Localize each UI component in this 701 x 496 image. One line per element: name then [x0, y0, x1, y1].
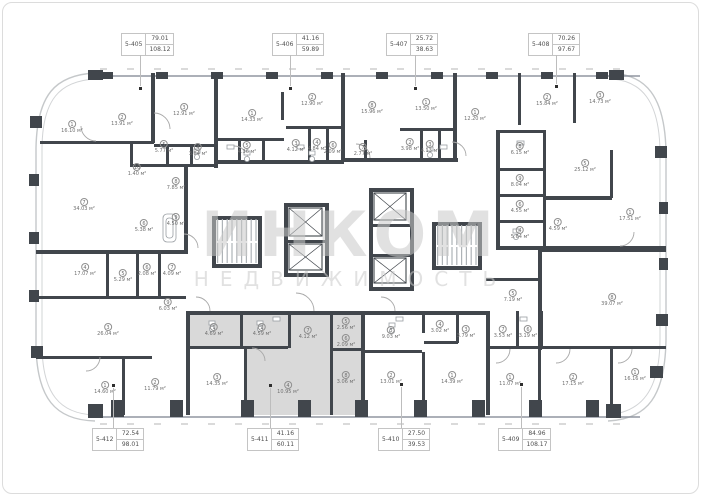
leader-dot — [520, 383, 523, 386]
unit-id: 5-407 — [387, 34, 411, 55]
unit-area-living: 72.54 — [117, 429, 143, 440]
leader-dot — [289, 87, 292, 90]
leader-line — [290, 55, 291, 86]
unit-area-total: 60.11 — [272, 440, 298, 450]
leader-dot — [112, 384, 115, 387]
leader-dot — [139, 87, 142, 90]
unit-area-total: 39.53 — [403, 440, 429, 450]
unit-area-total: 98.01 — [117, 440, 143, 450]
unit-area-living: 79.01 — [146, 34, 173, 45]
leader-line — [556, 55, 557, 84]
unit-id: 5-408 — [529, 34, 553, 55]
unit-label-5-408: 5-40870.2697.67 — [528, 33, 580, 56]
unit-area-total: 108.12 — [146, 45, 173, 55]
unit-area-living: 84.96 — [523, 429, 550, 440]
leader-line — [521, 387, 522, 428]
unit-label-5-406: 5-40641.1659.89 — [272, 33, 324, 56]
unit-id: 5-410 — [379, 429, 403, 450]
unit-id: 5-411 — [248, 429, 272, 450]
unit-area-living: 41.16 — [272, 429, 298, 440]
leader-dot — [400, 383, 403, 386]
unit-label-5-412: 5-41272.5498.01 — [92, 428, 144, 451]
unit-id: 5-405 — [122, 34, 146, 55]
unit-area-total: 59.89 — [297, 45, 323, 55]
unit-id: 5-406 — [273, 34, 297, 55]
unit-area-living: 25.72 — [411, 34, 437, 45]
unit-area-living: 27.50 — [403, 429, 429, 440]
unit-area-total: 38.63 — [411, 45, 437, 55]
leader-line — [140, 55, 141, 86]
unit-labels-layer: 5-40579.01108.125-40641.1659.895-40725.7… — [0, 0, 701, 496]
leader-line — [415, 55, 416, 86]
unit-id: 5-412 — [93, 429, 117, 450]
unit-label-5-411: 5-41141.1660.11 — [247, 428, 299, 451]
unit-area-total: 97.67 — [553, 45, 579, 55]
unit-label-5-409: 5-40984.96108.17 — [498, 428, 551, 451]
leader-line — [270, 388, 271, 428]
leader-dot — [555, 85, 558, 88]
unit-area-total: 108.17 — [523, 440, 550, 450]
unit-label-5-405: 5-40579.01108.12 — [121, 33, 174, 56]
leader-dot — [414, 87, 417, 90]
floorplan-canvas: 116.10 м²213.91 м²312.91 м²55.77 м²43.84… — [0, 0, 701, 496]
leader-dot — [269, 384, 272, 387]
leader-line — [401, 387, 402, 428]
unit-area-living: 41.16 — [297, 34, 323, 45]
unit-label-5-407: 5-40725.7238.63 — [386, 33, 438, 56]
unit-id: 5-409 — [499, 429, 523, 450]
unit-label-5-410: 5-41027.5039.53 — [378, 428, 430, 451]
unit-area-living: 70.26 — [553, 34, 579, 45]
leader-line — [113, 388, 114, 428]
